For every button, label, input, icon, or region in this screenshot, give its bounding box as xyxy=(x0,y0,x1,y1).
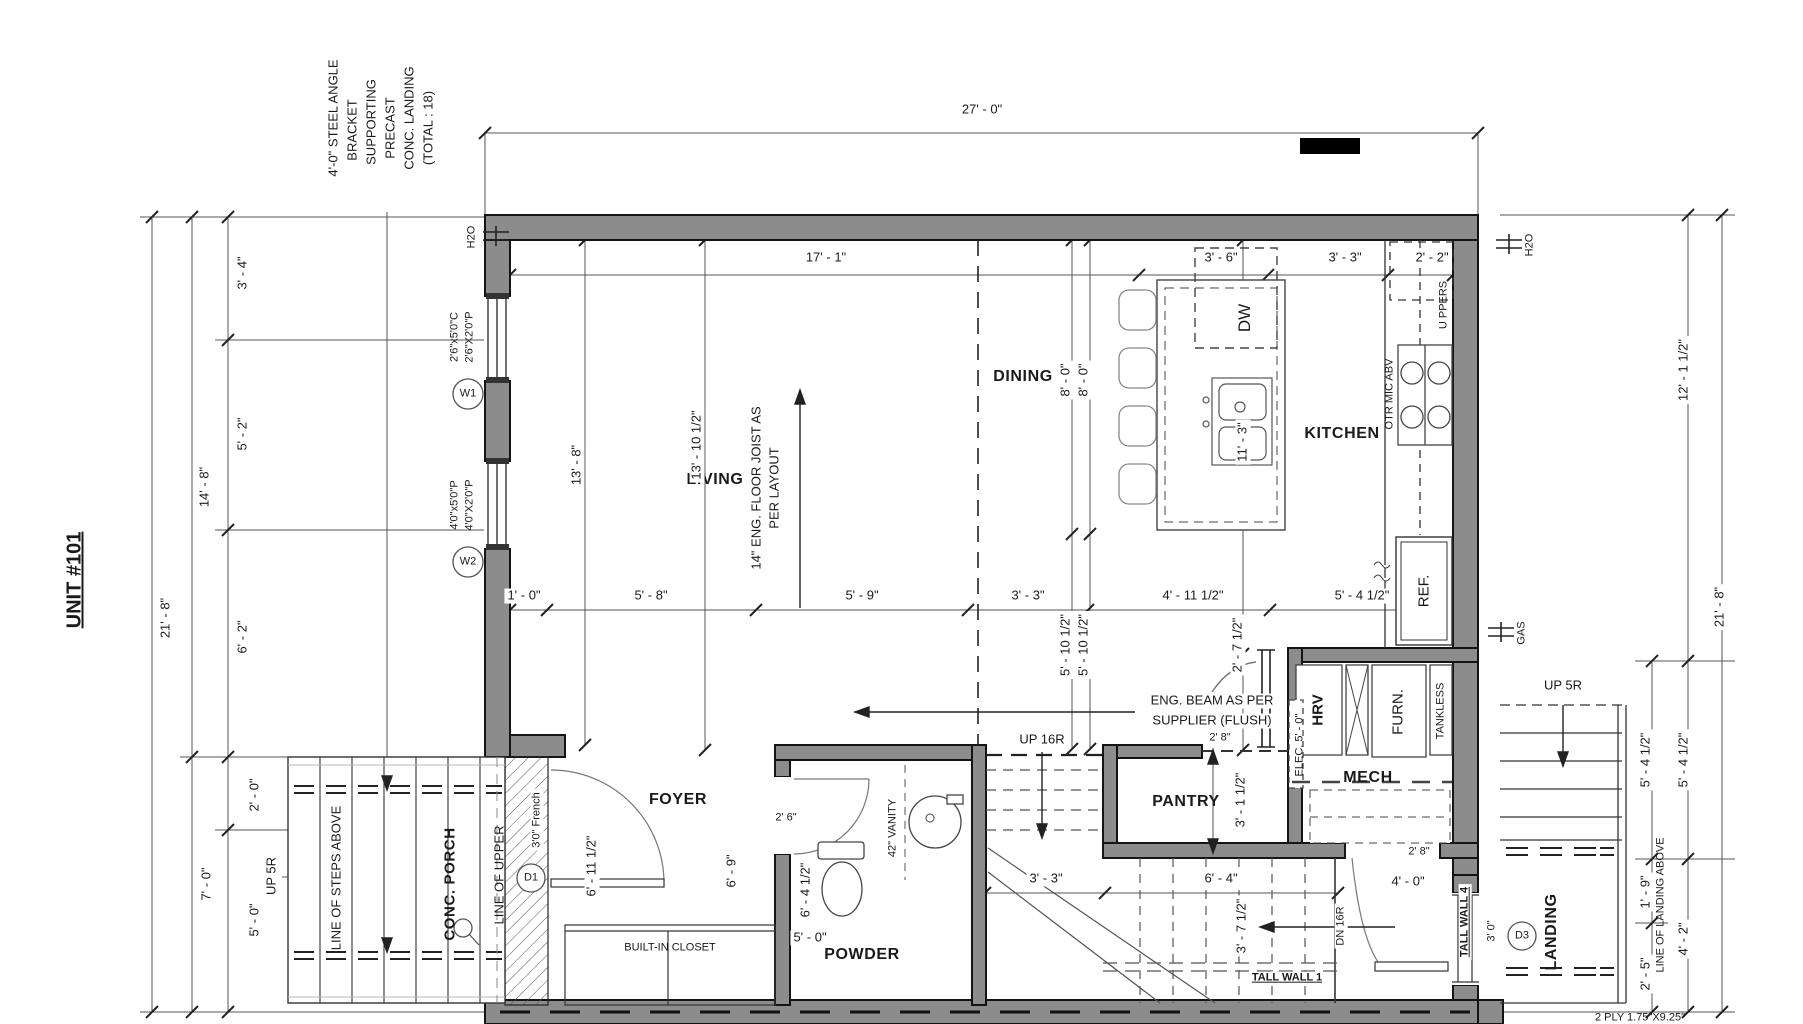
dim-foyer-b: 6' - 9" xyxy=(725,851,740,890)
dim-left-2: 5' - 2" xyxy=(236,414,251,453)
closet-lines xyxy=(565,925,775,1005)
dim-stair-d: 6' - 4" xyxy=(1201,872,1240,887)
closet-label: BUILT-IN CLOSET xyxy=(624,942,715,955)
dim-island: 11' - 3" xyxy=(1236,419,1251,464)
dim-left-overall: 21' - 8" xyxy=(159,595,174,641)
dim-right-overall: 21' - 8" xyxy=(1713,584,1728,630)
landing-right xyxy=(1500,705,1626,1003)
dim-stair-b: 5' - 10 1/2" xyxy=(1077,611,1092,679)
dim-pantry: 3' - 1 1/2" xyxy=(1234,770,1249,831)
window-tag-w1: W1 xyxy=(460,388,477,401)
up5r-left-label: UP 5R xyxy=(265,854,280,898)
window-w1-spec: 2'6"x5'0"C xyxy=(449,312,462,362)
otr-mic-label: OTR MIC ABV xyxy=(1384,359,1397,430)
pantry-door-size: 2' 8" xyxy=(1206,732,1233,745)
window-w2-spec: 4'0"X2'0"P xyxy=(464,479,477,530)
steel-note-line: BRACKET xyxy=(346,99,361,160)
dishwasher-label: DW xyxy=(1235,304,1255,332)
dim-mid-3: 5' - 9" xyxy=(842,589,881,604)
room-label-dining: DINING xyxy=(993,368,1053,386)
dim-mid-5: 4' - 11 1/2" xyxy=(1159,589,1226,604)
tankless-label: TANKLESS xyxy=(1435,683,1448,740)
dim-right-1: 5' - 4 1/2" xyxy=(1639,730,1654,791)
stair-dn-label: DN 16R xyxy=(1335,903,1348,948)
exterior-walls xyxy=(485,215,1503,1024)
steel-note-line: CONC. LANDING xyxy=(403,66,418,169)
dim-beam-offset: 2' - 7 1/2" xyxy=(1231,615,1246,676)
uppers-label: U PPERS xyxy=(1438,281,1451,329)
stair-up-label: UP 16R xyxy=(1016,733,1067,748)
joist-note: 14" ENG. FLOOR JOIST AS xyxy=(750,406,765,569)
dim-top-c: 3' - 3" xyxy=(1325,251,1364,266)
dim-top-b: 3' - 6" xyxy=(1201,251,1240,266)
mech-door-size: 2' 8" xyxy=(1405,846,1432,859)
dim-top-d: 2' - 2" xyxy=(1412,251,1451,266)
furnace-label: FURN. xyxy=(1389,689,1406,735)
steel-note-line: SUPPORTING xyxy=(365,79,380,165)
eng-beam-note: ENG. BEAM AS PER xyxy=(1148,694,1277,709)
gas-label: GAS xyxy=(1516,621,1529,644)
dim-top-a: 17' - 1" xyxy=(803,251,849,266)
line-of-upper: LINE OF UPPER xyxy=(493,826,508,925)
stove-icon xyxy=(1398,345,1452,445)
window-w2-spec: 4'0"x5'0"P xyxy=(449,480,462,529)
hrv-label: HRV xyxy=(1309,694,1326,725)
section-cut-marker xyxy=(1300,138,1360,154)
dim-mid-1: 1' - 0" xyxy=(504,589,543,604)
dim-right-2: 5' - 4 1/2" xyxy=(1677,730,1692,791)
gas-icon xyxy=(1488,622,1514,642)
window-tag-w2: W2 xyxy=(460,556,477,569)
ply-note: 2 PLY 1.75"X9.25" xyxy=(1595,1012,1685,1024)
steel-note-line: PRECAST xyxy=(384,97,399,158)
dim-foyer-c: 6' - 4 1/2" xyxy=(799,860,814,921)
eng-beam-note: SUPPLIER (FLUSH) xyxy=(1149,714,1274,729)
elec-label: ELEC. 5' - 0" xyxy=(1294,714,1307,777)
line-of-steps-above: LINE OF STEPS ABOVE xyxy=(330,806,345,951)
toilet-icon xyxy=(818,842,864,916)
room-label-mech: MECH xyxy=(1343,769,1393,787)
island-stools xyxy=(1119,290,1156,504)
door-tag-d3: D3 xyxy=(1515,930,1529,943)
dim-left-5: 7' - 0" xyxy=(200,864,215,903)
door-tag-d1: D1 xyxy=(524,872,538,885)
dim-left-1: 3' - 4" xyxy=(236,253,251,292)
dim-living-b: 13' - 10 1/2" xyxy=(690,407,705,482)
dim-stair-a: 5' - 10 1/2" xyxy=(1059,611,1074,679)
room-label-porch: CONC. PORCH xyxy=(441,827,458,940)
h2o-right-label: H2O xyxy=(1524,234,1537,257)
dim-left-6: 5' - 0" xyxy=(248,900,263,939)
room-label-powder: POWDER xyxy=(824,946,900,964)
dim-left-mid: 14' - 8" xyxy=(198,464,213,510)
dim-dining-b: 8' - 0" xyxy=(1077,360,1092,399)
up5r-right-label: UP 5R xyxy=(1541,679,1585,694)
dim-right-mid: 12' - 1 1/2" xyxy=(1677,336,1692,404)
door-d3-size: 3' 0" xyxy=(1486,917,1499,944)
h2o-right-icon xyxy=(1496,234,1522,254)
room-label-landing: LANDING xyxy=(1543,893,1561,970)
window-w2 xyxy=(484,458,511,550)
room-label-kitchen: KITCHEN xyxy=(1304,425,1379,443)
dim-left-3: 6' - 2" xyxy=(236,617,251,656)
dim-top-overall: 27' - 0" xyxy=(959,103,1005,118)
window-w1-spec: 2'6"X2'0"P xyxy=(464,311,477,362)
powder-door-size: 2' 6" xyxy=(772,812,799,825)
tall-wall-1-label: TALL WALL 1 xyxy=(1249,972,1325,985)
dim-living-a: 13' - 8" xyxy=(570,442,585,488)
steel-note-line: (TOTAL : 18) xyxy=(422,91,437,165)
door-d1-size: 3'0" French xyxy=(531,789,544,851)
dim-left-4: 2' - 0" xyxy=(248,775,263,814)
dim-dining-a: 8' - 0" xyxy=(1059,360,1074,399)
room-label-foyer: FOYER xyxy=(649,791,707,809)
dim-foyer-a: 6' - 11 1/2" xyxy=(585,832,600,899)
dim-stair-c: 3' - 3" xyxy=(1026,872,1065,887)
dim-mid-4: 3' - 3" xyxy=(1008,589,1047,604)
tall-wall-4-label: TALL WALL 4 xyxy=(1459,884,1472,960)
window-w1 xyxy=(484,293,511,383)
dim-right-4: 4' - 2" xyxy=(1677,919,1692,958)
h2o-left-label: H2O xyxy=(466,226,479,249)
joist-note: PER LAYOUT xyxy=(768,447,783,528)
line-of-landing-above: LINE OF LANDING ABOVE xyxy=(1655,837,1668,972)
floor-plan-unit-101: 4'-0" STEEL ANGLE BRACKET SUPPORTING PRE… xyxy=(0,0,1803,1024)
steel-note-line: 4'-0" STEEL ANGLE xyxy=(327,59,342,176)
room-label-pantry: PANTRY xyxy=(1152,793,1220,811)
unit-title: UNIT #101 xyxy=(64,532,87,629)
dim-powder: 5' - 0" xyxy=(790,931,829,946)
dim-stair-e: 3' - 7 1/2" xyxy=(1235,896,1250,957)
dim-right-3: 1' - 9" xyxy=(1639,872,1654,911)
fridge-label: REF. xyxy=(1415,575,1432,608)
mech-door-swing: 4' - 0" xyxy=(1388,875,1427,890)
vanity-sink-icon xyxy=(909,795,963,848)
mech-equipment xyxy=(1289,665,1452,843)
dim-mid-6: 5' - 4 1/2" xyxy=(1332,589,1393,604)
vanity-label: 42" VANITY xyxy=(887,796,900,860)
dim-right-5: 2' - 5" xyxy=(1639,954,1654,993)
porch xyxy=(288,757,505,1003)
dim-mid-2: 5' - 8" xyxy=(631,589,670,604)
